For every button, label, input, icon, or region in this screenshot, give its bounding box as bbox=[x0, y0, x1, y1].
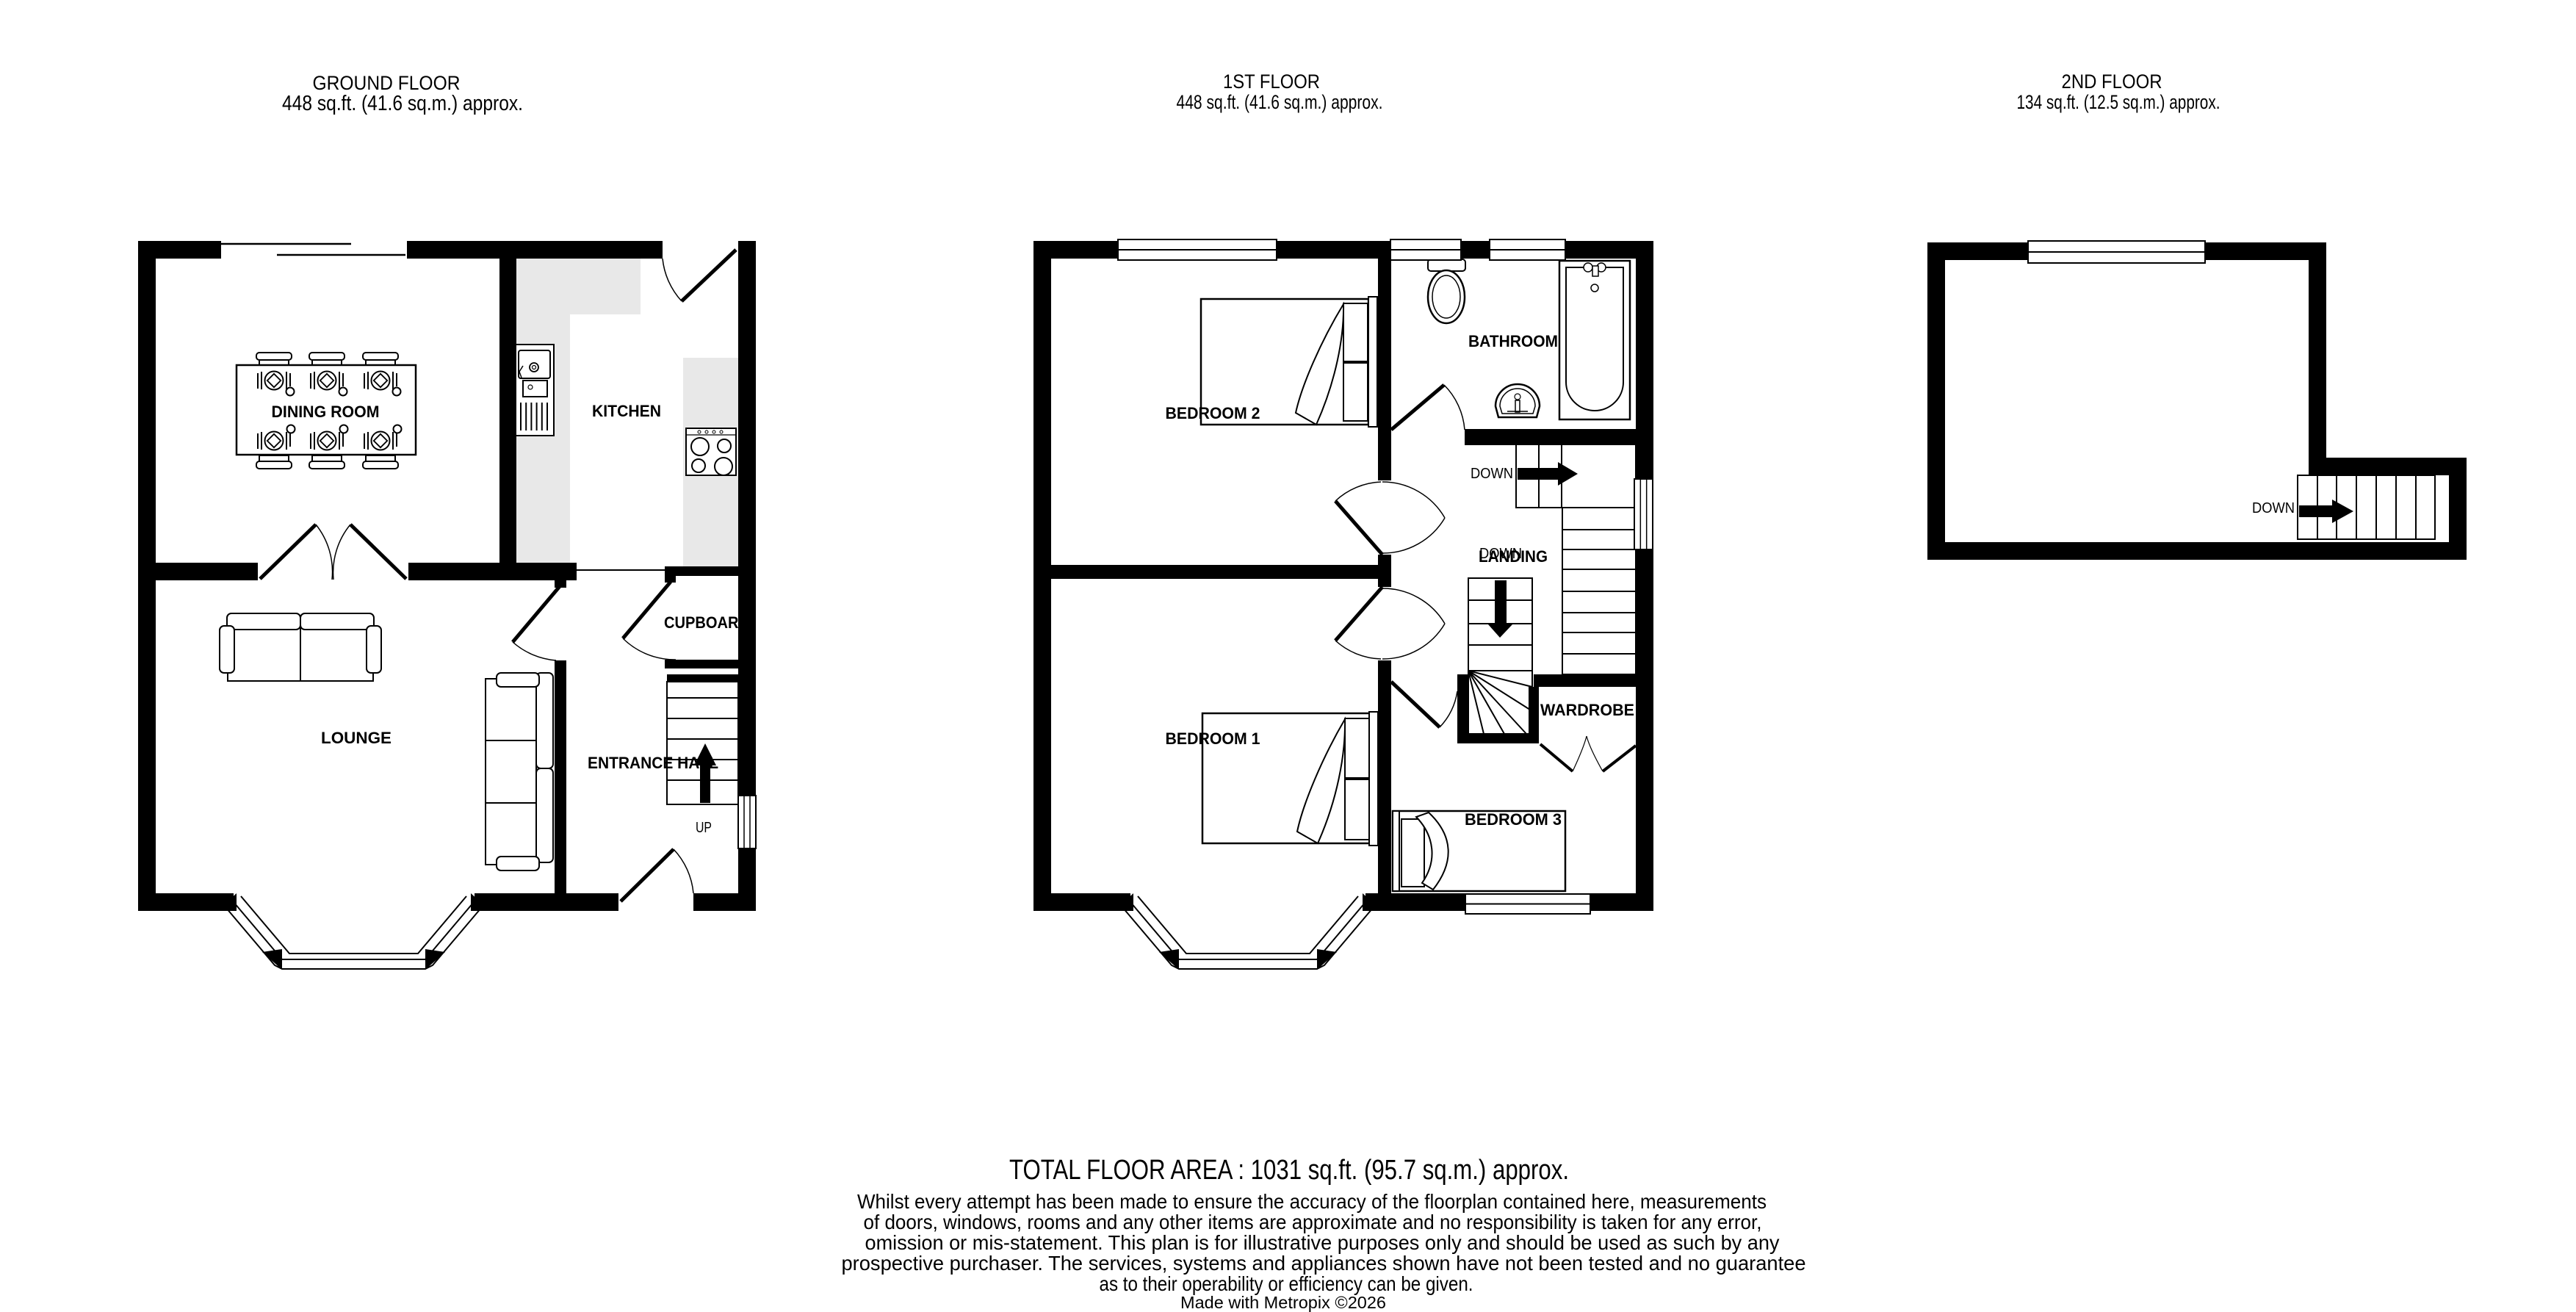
svg-text:KITCHEN: KITCHEN bbox=[592, 402, 661, 420]
svg-text:as to their operability or eff: as to their operability or efficiency ca… bbox=[1100, 1272, 1473, 1295]
svg-text:448 sq.ft. (41.6 sq.m.) approx: 448 sq.ft. (41.6 sq.m.) approx. bbox=[282, 92, 523, 115]
svg-text:LANDING: LANDING bbox=[1479, 547, 1548, 566]
svg-text:134 sq.ft. (12.5 sq.m.) approx: 134 sq.ft. (12.5 sq.m.) approx. bbox=[2017, 91, 2220, 113]
svg-text:2ND FLOOR: 2ND FLOOR bbox=[2062, 71, 2162, 93]
svg-text:1ST FLOOR: 1ST FLOOR bbox=[1223, 71, 1320, 93]
svg-text:BEDROOM 1: BEDROOM 1 bbox=[1166, 729, 1260, 748]
svg-text:ENTRANCE HALL: ENTRANCE HALL bbox=[588, 754, 718, 772]
svg-text:CUPBOARD: CUPBOARD bbox=[664, 613, 749, 632]
svg-text:DOWN: DOWN bbox=[1471, 466, 1513, 482]
svg-text:BEDROOM 2: BEDROOM 2 bbox=[1166, 404, 1260, 422]
svg-text:prospective purchaser. The ser: prospective purchaser. The services, sys… bbox=[842, 1252, 1806, 1275]
svg-text:UP: UP bbox=[696, 820, 712, 836]
svg-text:LOUNGE: LOUNGE bbox=[321, 729, 392, 747]
svg-text:TOTAL FLOOR AREA : 1031 sq.ft.: TOTAL FLOOR AREA : 1031 sq.ft. (95.7 sq.… bbox=[1009, 1155, 1569, 1186]
svg-text:Whilst every attempt has been: Whilst every attempt has been made to en… bbox=[857, 1190, 1767, 1213]
svg-text:omission or mis-statement. Thi: omission or mis-statement. This plan is … bbox=[865, 1231, 1780, 1254]
svg-text:BATHROOM: BATHROOM bbox=[1468, 332, 1558, 350]
svg-text:WARDROBE: WARDROBE bbox=[1540, 701, 1634, 719]
svg-text:of doors, windows, rooms and a: of doors, windows, rooms and any other i… bbox=[864, 1211, 1762, 1233]
svg-text:Made with Metropix ©2026: Made with Metropix ©2026 bbox=[1180, 1293, 1386, 1312]
svg-text:448 sq.ft. (41.6 sq.m.) approx: 448 sq.ft. (41.6 sq.m.) approx. bbox=[1177, 91, 1383, 113]
svg-text:GROUND FLOOR: GROUND FLOOR bbox=[313, 72, 461, 94]
svg-text:DINING ROOM: DINING ROOM bbox=[272, 403, 380, 421]
svg-text:BEDROOM 3: BEDROOM 3 bbox=[1465, 810, 1562, 829]
svg-text:DOWN: DOWN bbox=[2252, 500, 2295, 516]
